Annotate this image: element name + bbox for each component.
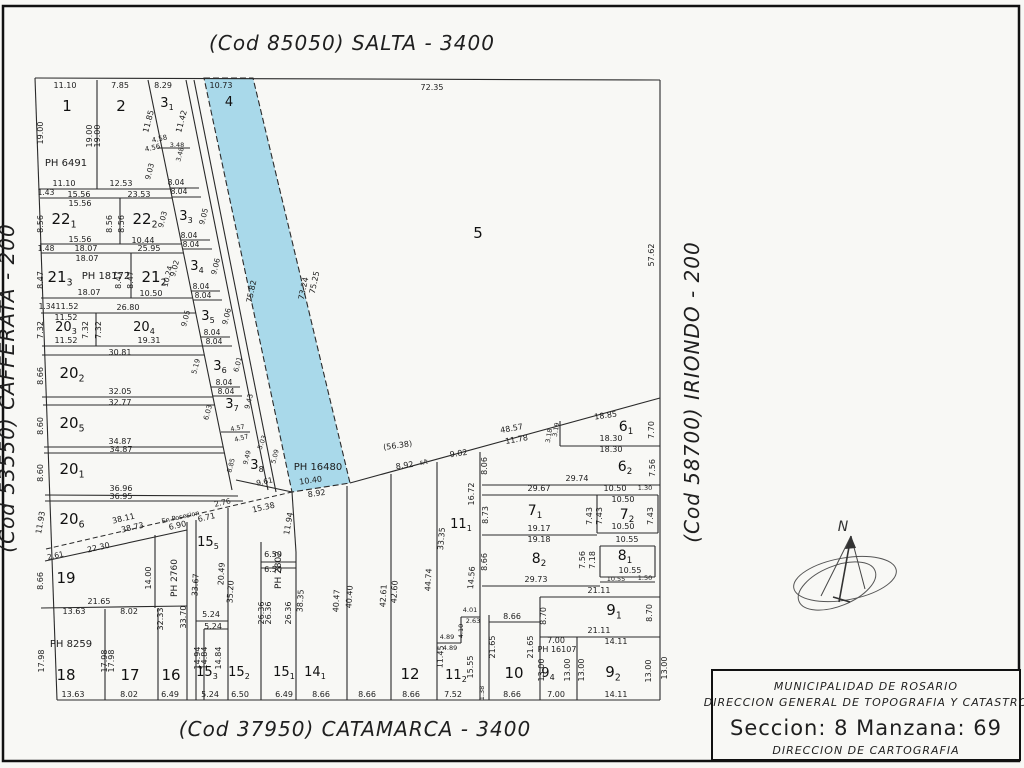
canal-strip-parcel: [204, 78, 350, 492]
measurement-label: 8.66: [503, 612, 521, 621]
measurement-label: 19.18: [528, 535, 551, 544]
measurement-label: 8.92: [307, 488, 326, 499]
cadastral-plan-page: 11.107.858.2910.7372.3519.0019.0019.0011…: [0, 0, 1024, 768]
measurement-label: 22.30: [86, 541, 110, 555]
measurement-label: 34.87: [110, 445, 133, 454]
parcel-label: 212: [141, 268, 166, 288]
measurement-label: 8.04: [204, 328, 221, 337]
measurement-label: 4.57: [233, 432, 249, 443]
measurement-label: 32.33: [156, 608, 165, 631]
measurement-label: 8.85: [225, 457, 236, 473]
measurement-label: 5.24: [204, 622, 222, 631]
parcel-label: 152: [228, 665, 250, 681]
measurement-label: 8.04: [216, 378, 233, 387]
title-cartografia: DIRECCION DE CARTOGRAFIA: [772, 744, 959, 757]
measurement-label: 14.84: [214, 647, 223, 670]
outer-frame: [3, 6, 1019, 761]
measurement-label: 14.00: [144, 567, 153, 590]
measurement-label: 5.19: [190, 358, 202, 375]
measurement-label: 15.56: [68, 190, 91, 199]
measurement-label: 21.65: [526, 636, 535, 659]
measurement-label: 11.85: [141, 109, 156, 133]
measurement-label: 8.02: [120, 690, 138, 699]
parcel-label: 112: [445, 668, 467, 684]
measurement-label: PH 8259: [50, 639, 92, 650]
parcel-label: 82: [532, 551, 546, 569]
parcel-label: 16: [161, 666, 180, 684]
measurement-label: 44.74: [423, 568, 433, 591]
parcel-label: 151: [273, 665, 295, 681]
measurement-label: PH 2760: [170, 559, 180, 597]
measurement-label: 8.56: [36, 215, 45, 233]
measurement-label: 11.93: [34, 511, 47, 535]
measurement-label: 8.66: [312, 690, 330, 699]
measurement-label: 8.56: [105, 215, 114, 233]
measurement-label: 8.92: [395, 460, 414, 471]
measurement-label: 7.85: [111, 81, 129, 90]
measurement-label: 19.00: [93, 125, 102, 148]
parcel-label: 72: [620, 507, 634, 525]
measurement-label: 15.55: [466, 656, 475, 679]
street-label-catamarca: (Cod 37950) CATAMARCA - 3400: [179, 717, 531, 741]
measurement-label: 13.00: [660, 657, 669, 680]
measurement-label: 8.04: [183, 240, 200, 249]
parcel-label: 111: [450, 517, 472, 533]
title-section-manzana: Seccion: 8 Manzana: 69: [730, 716, 1002, 740]
measurement-label: 11.52: [55, 336, 78, 345]
parcel-label: 205: [59, 414, 84, 434]
measurement-label: 11.45: [435, 645, 445, 668]
measurement-label: 7.43: [646, 507, 655, 525]
map-labels: 11.107.858.2910.7372.3519.0019.0019.0011…: [34, 81, 669, 700]
measurement-label: 42.61: [378, 584, 388, 607]
parcel-label: 4: [225, 95, 233, 110]
measurement-label: 15.56: [69, 199, 92, 208]
measurement-label: 17.98: [107, 650, 116, 673]
measurement-label: 10.55: [607, 575, 626, 583]
measurement-label: 1.30: [638, 484, 652, 492]
measurement-label: 6.71: [197, 511, 216, 524]
measurement-label: 21.65: [488, 636, 497, 659]
measurement-label: 21.11: [588, 586, 611, 595]
measurement-label: 6.49: [161, 690, 179, 699]
boundary-line: [45, 530, 187, 561]
measurement-label: 20.49: [216, 562, 226, 585]
measurement-label: 2.61: [46, 549, 65, 562]
measurement-label: 8.06: [480, 457, 489, 475]
measurement-label: 12.53: [110, 179, 133, 188]
boundary-line: [35, 78, 57, 700]
measurement-label: 9.02: [168, 259, 181, 278]
parcel-label: 5: [473, 224, 483, 242]
measurement-label: 7.52: [444, 690, 462, 699]
measurement-label: 6.50: [231, 690, 249, 699]
measurement-label: 40.47: [331, 589, 341, 612]
measurement-label: 38.35: [295, 589, 305, 612]
measurement-label: 10.50: [612, 495, 635, 504]
measurement-label: 1.43: [38, 188, 55, 197]
measurement-label: 13.00: [563, 659, 572, 682]
measurement-label: 11.52: [56, 302, 79, 311]
measurement-label: 8.60: [36, 464, 45, 482]
measurement-label: 8.66: [358, 690, 376, 699]
measurement-label: 9.61: [255, 475, 273, 487]
measurement-label: 14.56: [466, 566, 477, 590]
measurement-label: 6.49: [275, 690, 293, 699]
parcel-label: 2: [116, 97, 126, 115]
measurement-label: s/t: [419, 457, 429, 466]
compass-leg-left: [821, 536, 851, 596]
parcel-label: 61: [619, 419, 633, 437]
measurement-label: 29.67: [528, 484, 551, 493]
measurement-label: 7.43: [595, 507, 604, 525]
measurement-label: 35.20: [225, 580, 235, 603]
measurement-label: 8.66: [36, 572, 45, 590]
parcel-label: 31: [160, 96, 173, 112]
parcel-label: 221: [51, 210, 76, 230]
parcel-label: 33: [179, 209, 192, 225]
measurement-label: 8.04: [218, 387, 235, 396]
street-label-cafferata: (Cod 53550) CAFFERATA - 200: [0, 223, 19, 552]
measurement-label: 7.32: [36, 321, 45, 339]
measurement-label: PH 6491: [45, 158, 87, 169]
measurement-label: 11.42: [174, 109, 189, 133]
parcel-label: 81: [618, 548, 632, 566]
measurement-label: 14.11: [605, 690, 628, 699]
parcel-label: 1: [62, 97, 72, 115]
measurement-label: 8.04: [206, 337, 223, 346]
measurement-label: 7.18: [588, 551, 597, 569]
measurement-label: 33.35: [436, 527, 447, 551]
measurement-label: 18.85: [594, 409, 618, 421]
measurement-label: 8.04: [181, 231, 198, 240]
title-block: MUNICIPALIDAD DE ROSARIO DIRECCION GENER…: [704, 670, 1024, 760]
measurement-label: 36.95: [110, 492, 133, 501]
street-label-salta: (Cod 85050) SALTA - 3400: [209, 31, 495, 55]
measurement-label: 18.30: [600, 434, 623, 443]
measurement-label: 32.77: [109, 398, 132, 407]
measurement-label: 4.56: [144, 142, 161, 153]
measurement-label: 15.38: [251, 501, 275, 515]
measurement-label: 48.57: [500, 422, 524, 435]
parcel-label: 202: [59, 364, 84, 384]
measurement-label: 9.05: [197, 207, 210, 226]
measurement-label: 1.34: [39, 302, 56, 311]
measurement-label: 8.04: [168, 178, 185, 187]
parcel-label: 17: [120, 666, 139, 684]
measurement-label: 7.56: [578, 551, 587, 569]
parcel-label: 19: [56, 569, 75, 587]
measurement-label: 8.66: [480, 553, 489, 571]
measurement-label: 8.70: [645, 604, 654, 622]
measurement-label: 33.70: [179, 606, 188, 629]
cadastral-map: 11.107.858.2910.7372.3519.0019.0019.0011…: [0, 0, 1024, 768]
measurement-label: 9.03: [156, 210, 169, 229]
parcel-label: 91: [606, 601, 622, 621]
measurement-label: 11.10: [53, 179, 76, 188]
measurement-label: 19.00: [36, 122, 45, 145]
measurement-label: 8.56: [117, 215, 126, 233]
measurement-label: 21.11: [588, 626, 611, 635]
measurement-label: 7.70: [647, 421, 656, 439]
measurement-label: 11.94: [282, 512, 295, 536]
measurement-label: 4.01: [463, 606, 477, 614]
measurement-label: 5.09: [269, 448, 280, 464]
measurement-label: 11.78: [505, 433, 529, 446]
measurement-label: 2.63: [466, 617, 480, 625]
measurement-label: 57.62: [647, 244, 656, 267]
parcel-label: 94: [541, 666, 554, 682]
measurement-label: 8.66: [36, 367, 45, 385]
parcel-label: 12: [400, 665, 419, 683]
measurement-label: 8.29: [154, 81, 172, 90]
measurement-label: (56.38): [383, 439, 413, 452]
measurement-label: 1.48: [38, 244, 55, 253]
measurement-label: 13.63: [62, 690, 85, 699]
measurement-label: 18.30: [600, 445, 623, 454]
measurement-label: 8.04: [193, 282, 210, 291]
parcel-label: 201: [59, 460, 84, 480]
measurement-label: 10.50: [140, 289, 163, 298]
parcel-label: 18: [56, 666, 75, 684]
measurement-label: 8.73: [481, 506, 490, 524]
parcel-label: 37: [225, 397, 238, 413]
parcel-label: 34: [190, 259, 203, 275]
parcel-label: 10: [504, 664, 523, 682]
measurement-label: 9.06: [209, 257, 222, 276]
measurement-label: 11.10: [54, 81, 77, 90]
measurement-label: 18.07: [76, 254, 99, 263]
compass-arrowhead: [845, 536, 856, 549]
measurement-label: 40.40: [344, 585, 354, 608]
measurement-label: 4.89: [440, 633, 454, 641]
parcel-label: 222: [132, 210, 157, 230]
measurement-label: 1.50: [638, 574, 652, 582]
measurement-label: 18.07: [78, 288, 101, 297]
measurement-label: 1.38: [478, 686, 486, 700]
compass-rose: N: [790, 519, 900, 620]
parcel-label: 204: [133, 320, 155, 336]
compass-ellipse-inner: [791, 552, 882, 620]
measurement-label: 16.72: [467, 483, 476, 506]
measurement-label: 21.65: [88, 597, 111, 606]
measurement-label: 9.43: [243, 393, 255, 410]
measurement-label: 10.55: [616, 535, 639, 544]
measurement-label: 15.56: [69, 235, 92, 244]
measurement-label: 26.36: [264, 602, 273, 625]
measurement-label: 5.24: [202, 610, 220, 619]
measurement-label: 8.47: [126, 271, 135, 289]
measurement-label: 8.04: [171, 187, 188, 196]
measurement-label: 7.32: [81, 321, 90, 339]
measurement-label: 72.35: [421, 83, 444, 92]
measurement-label: 10.50: [604, 484, 627, 493]
measurement-label: 19.31: [138, 336, 161, 345]
measurement-label: 8.47: [114, 271, 123, 289]
compass-north-label: N: [838, 519, 849, 535]
measurement-label: 6.01: [232, 356, 244, 373]
measurement-label: 7.00: [547, 690, 565, 699]
measurement-label: 7.00: [547, 636, 565, 645]
parcel-label: 36: [213, 359, 226, 375]
measurement-label: 32.05: [109, 387, 132, 396]
measurement-label: 10.73: [210, 81, 233, 90]
parcel-label: 206: [59, 510, 84, 530]
boundary-line: [45, 495, 238, 496]
measurement-label: 9.05: [179, 309, 192, 328]
parcel-label: 62: [618, 459, 632, 477]
measurement-label: PH 16480: [294, 462, 343, 473]
canal-strip: [204, 78, 350, 492]
measurement-label: 4.10: [457, 624, 465, 638]
measurement-label: 6.03: [202, 404, 214, 421]
measurement-label: 13.00: [644, 660, 653, 683]
parcel-label: 141: [304, 665, 326, 681]
parcel-label: 92: [605, 663, 620, 683]
parcel-label: 213: [47, 268, 72, 288]
measurement-label: 13.63: [63, 607, 86, 616]
parcel-label: 71: [528, 503, 542, 521]
parcel-label: 155: [197, 535, 219, 551]
measurement-label: 7.32: [94, 321, 103, 339]
measurement-label: 8.47: [36, 271, 45, 289]
measurement-label: 9.06: [220, 307, 233, 326]
measurement-label: PH 16107: [538, 645, 577, 654]
measurement-label: 8.02: [120, 607, 138, 616]
measurement-label: 5.24: [201, 690, 219, 699]
measurement-label: 30.81: [109, 348, 132, 357]
measurement-label: 7.56: [648, 459, 657, 477]
measurement-label: 8.60: [36, 417, 45, 435]
measurement-label: 9.02: [449, 448, 468, 459]
measurement-label: 25.95: [138, 244, 161, 253]
title-municipality: MUNICIPALIDAD DE ROSARIO: [774, 680, 958, 693]
street-label-iriondo: (Cod 58700) IRIONDO - 200: [680, 241, 704, 542]
measurement-label: 7.43: [585, 507, 594, 525]
measurement-label: 8.70: [539, 607, 548, 625]
measurement-label: 23.53: [128, 190, 151, 199]
parcel-label: 203: [55, 320, 77, 336]
measurement-label: 33.67: [190, 573, 200, 596]
measurement-label: 14.11: [605, 637, 628, 646]
measurement-label: 26.80: [117, 303, 140, 312]
measurement-label: 8.04: [195, 291, 212, 300]
measurement-label: PH 2802: [274, 551, 284, 589]
measurement-label: 9.03: [143, 162, 156, 181]
measurement-label: 26.36: [284, 602, 293, 625]
parcel-label: 35: [201, 309, 214, 325]
measurement-label: 18.07: [75, 244, 98, 253]
measurement-label: 29.73: [525, 575, 548, 584]
measurement-label: 42.60: [389, 580, 399, 603]
measurement-label: 17.98: [37, 650, 46, 673]
measurement-label: 19.17: [528, 524, 551, 533]
measurement-label: 75.25: [308, 270, 322, 294]
measurement-label: 13.00: [577, 659, 586, 682]
title-direction-general: DIRECCION GENERAL DE TOPOGRAFIA Y CATAST…: [704, 696, 1024, 709]
measurement-label: 29.74: [566, 474, 589, 483]
measurement-label: 8.66: [503, 690, 521, 699]
boundary-line: [35, 78, 660, 80]
measurement-label: 8.66: [402, 690, 420, 699]
